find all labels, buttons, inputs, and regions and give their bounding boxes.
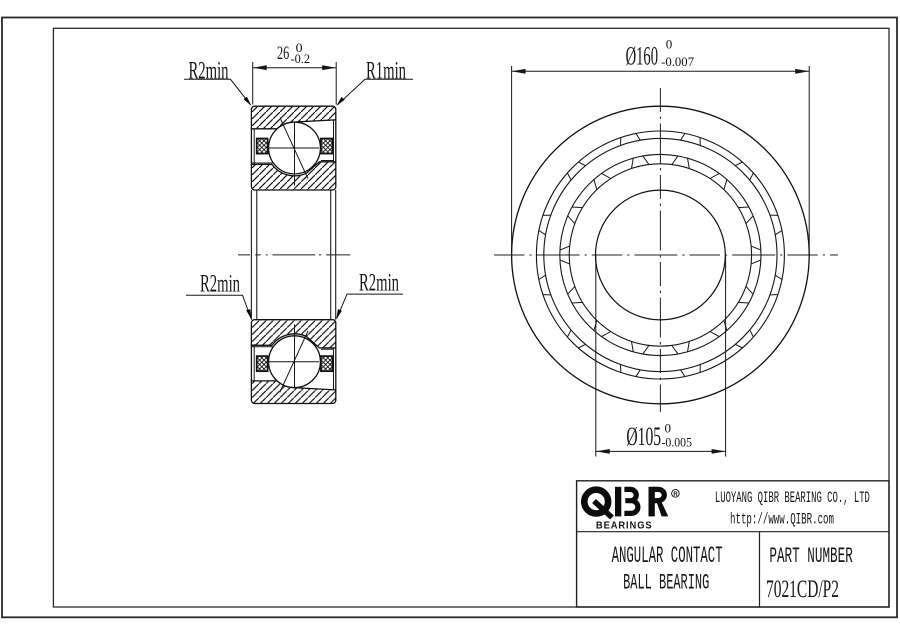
svg-text:-0.007: -0.007 — [661, 55, 694, 69]
svg-text:-0.2: -0.2 — [291, 52, 311, 66]
svg-text:LUOYANG QIBR BEARING CO., LTD: LUOYANG QIBR BEARING CO., LTD — [715, 489, 870, 507]
svg-text:R2min: R2min — [359, 270, 399, 297]
svg-text:R2min: R2min — [189, 58, 229, 85]
svg-text:26: 26 — [277, 43, 289, 64]
svg-text:Ø160: Ø160 — [626, 42, 658, 71]
svg-text:http://www.QIBR.com: http://www.QIBR.com — [730, 511, 834, 529]
svg-text:7021CD/P2: 7021CD/P2 — [766, 576, 839, 603]
svg-text:BEARINGS: BEARINGS — [596, 519, 653, 531]
svg-text:R2min: R2min — [200, 271, 240, 298]
svg-text:R: R — [673, 492, 678, 498]
svg-text:0: 0 — [666, 38, 673, 52]
svg-text:ANGULAR CONTACT: ANGULAR CONTACT — [612, 543, 723, 569]
svg-text:PART NUMBER: PART NUMBER — [769, 544, 852, 569]
svg-text:BALL BEARING: BALL BEARING — [623, 570, 709, 596]
svg-text:Ø105: Ø105 — [626, 422, 661, 451]
svg-text:R1min: R1min — [366, 58, 406, 85]
svg-text:-0.005: -0.005 — [662, 436, 693, 450]
svg-text:0: 0 — [665, 422, 672, 436]
